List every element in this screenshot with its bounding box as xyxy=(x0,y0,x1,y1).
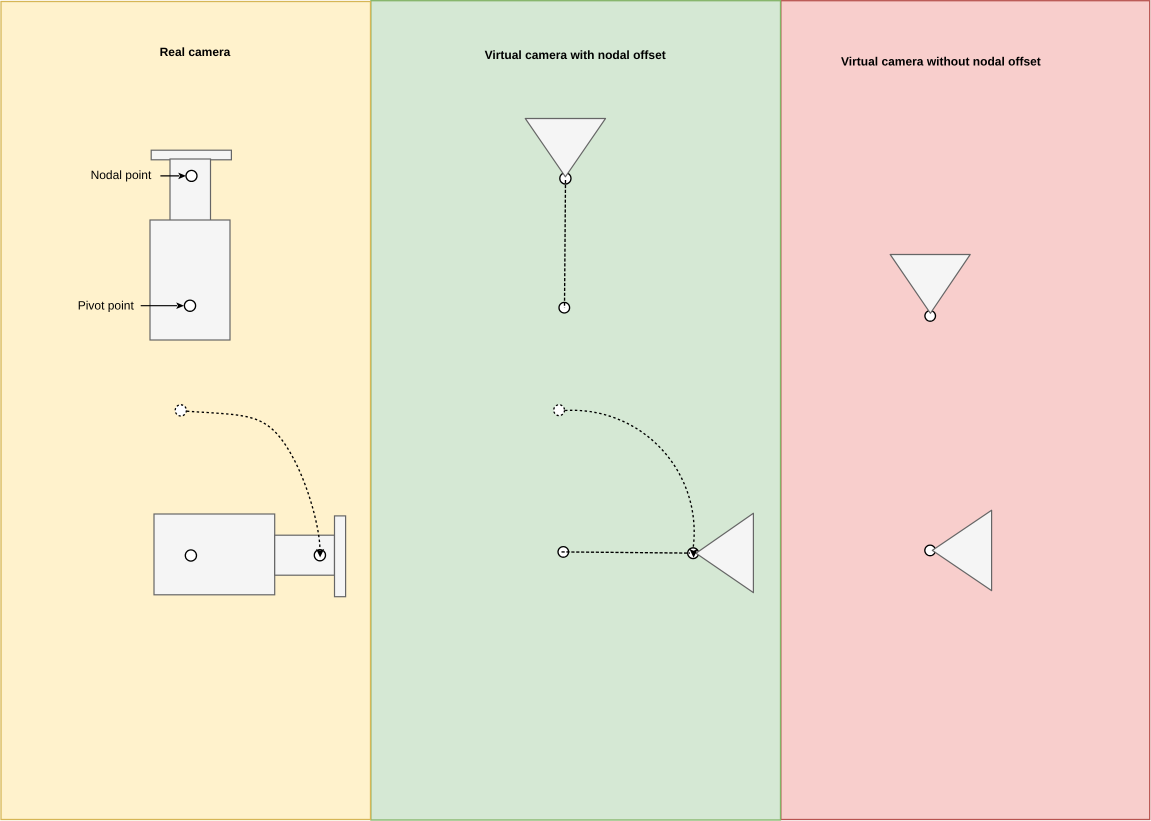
svg-text:Real camera: Real camera xyxy=(160,45,231,59)
svg-text:Virtual camera with nodal offs: Virtual camera with nodal offset xyxy=(485,48,666,62)
svg-text:Virtual camera without nodal o: Virtual camera without nodal offset xyxy=(841,54,1041,68)
svg-text:Pivot point: Pivot point xyxy=(78,298,135,312)
svg-text:Nodal point: Nodal point xyxy=(91,168,152,182)
